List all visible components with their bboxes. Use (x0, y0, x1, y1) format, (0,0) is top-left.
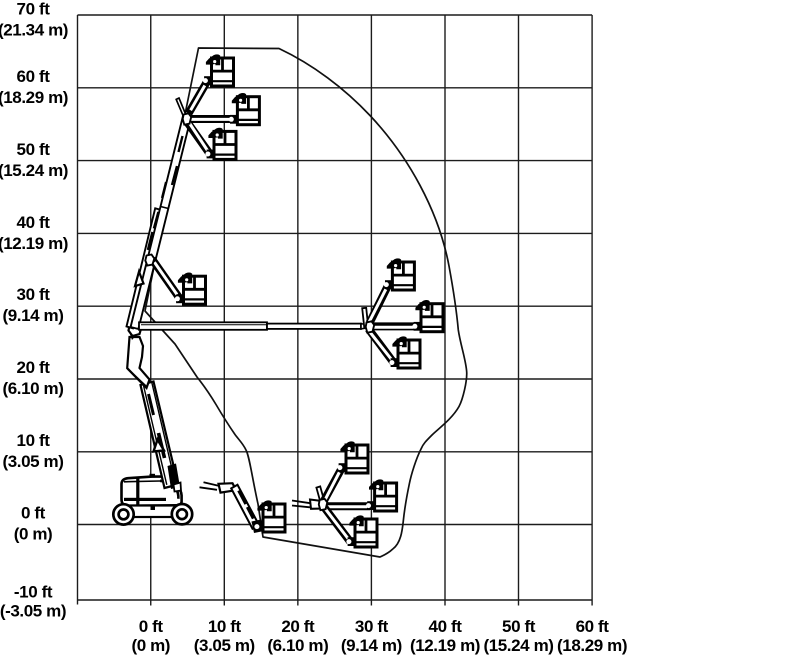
svg-text:10 ft: 10 ft (17, 431, 51, 450)
svg-text:40 ft: 40 ft (429, 617, 463, 636)
svg-text:(15.24 m): (15.24 m) (483, 636, 553, 655)
svg-text:70 ft: 70 ft (17, 0, 51, 19)
svg-text:30 ft: 30 ft (17, 285, 51, 304)
svg-text:(12.19 m): (12.19 m) (0, 234, 68, 253)
svg-text:10 ft: 10 ft (208, 617, 242, 636)
svg-text:20 ft: 20 ft (17, 358, 51, 377)
svg-text:30 ft: 30 ft (355, 617, 389, 636)
svg-text:60 ft: 60 ft (576, 617, 610, 636)
svg-text:(9.14 m): (9.14 m) (341, 636, 402, 655)
svg-text:(-3.05 m): (-3.05 m) (0, 602, 66, 621)
svg-text:(18.29 m): (18.29 m) (0, 88, 68, 107)
svg-text:50 ft: 50 ft (502, 617, 536, 636)
svg-text:50 ft: 50 ft (17, 140, 51, 159)
svg-text:0 ft: 0 ft (139, 617, 164, 636)
svg-text:(15.24 m): (15.24 m) (0, 161, 68, 180)
svg-text:(6.10 m): (6.10 m) (2, 379, 63, 398)
svg-text:(3.05 m): (3.05 m) (194, 636, 255, 655)
svg-text:20 ft: 20 ft (281, 617, 315, 636)
svg-text:(12.19 m): (12.19 m) (410, 636, 480, 655)
svg-text:(3.05 m): (3.05 m) (2, 452, 63, 471)
svg-text:(9.14 m): (9.14 m) (2, 306, 63, 325)
svg-text:40 ft: 40 ft (17, 213, 51, 232)
svg-text:(21.34 m): (21.34 m) (0, 21, 68, 40)
svg-text:60 ft: 60 ft (17, 67, 51, 86)
svg-text:(0 m): (0 m) (14, 525, 53, 544)
svg-text:(18.29 m): (18.29 m) (557, 636, 627, 655)
svg-text:(6.10 m): (6.10 m) (267, 636, 328, 655)
svg-text:0 ft: 0 ft (21, 504, 46, 523)
svg-text:(0 m): (0 m) (131, 636, 170, 655)
svg-text:-10 ft: -10 ft (14, 583, 53, 602)
